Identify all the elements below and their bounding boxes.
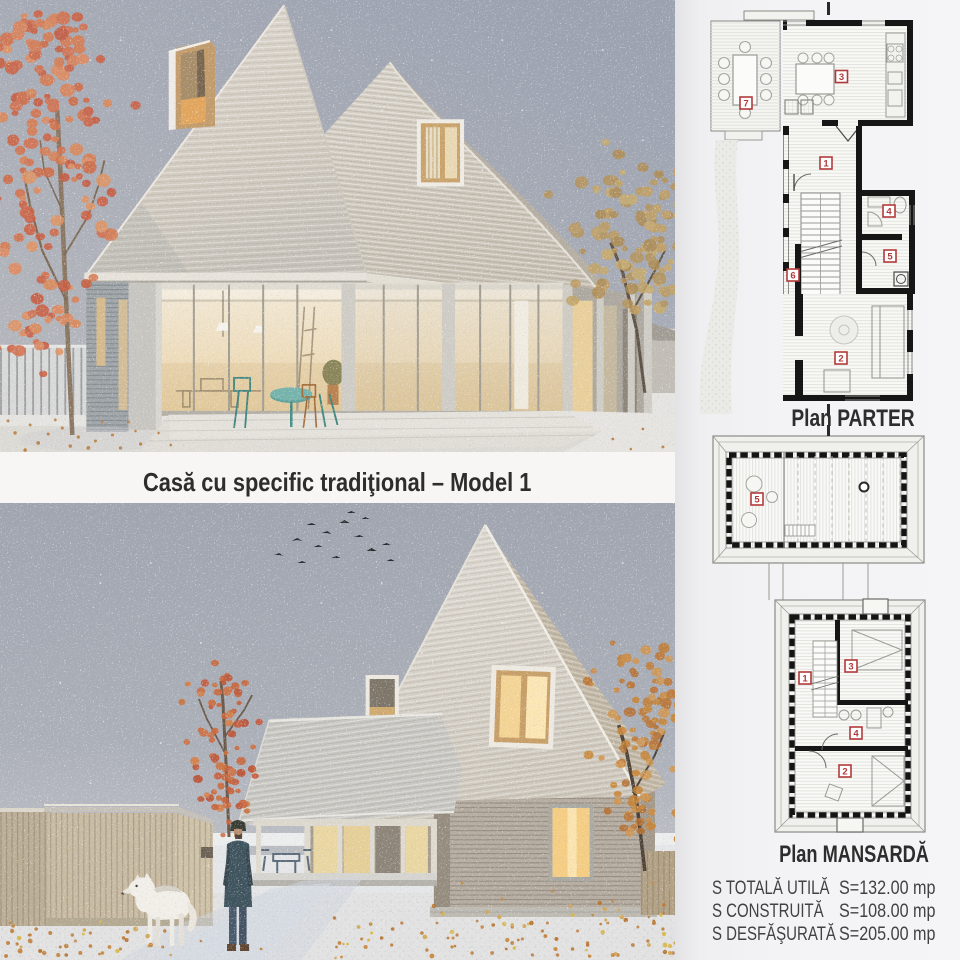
svg-text:S CONSTRUITĂ: S CONSTRUITĂ: [712, 900, 824, 921]
svg-text:S DESFĂŞURATĂ: S DESFĂŞURATĂ: [712, 923, 836, 944]
svg-text:S=108.00 mp: S=108.00 mp: [839, 900, 936, 922]
svg-text:2: 2: [842, 767, 847, 778]
svg-text:3: 3: [839, 72, 844, 83]
svg-text:7: 7: [743, 99, 748, 110]
svg-text:4: 4: [853, 729, 859, 740]
svg-text:1: 1: [823, 159, 829, 170]
svg-text:4: 4: [886, 207, 892, 218]
svg-text:6: 6: [790, 271, 795, 282]
svg-text:5: 5: [754, 495, 760, 506]
svg-text:S=132.00 mp: S=132.00 mp: [839, 877, 936, 899]
svg-text:S TOTALĂ UTILĂ: S TOTALĂ UTILĂ: [712, 877, 830, 898]
svg-text:5: 5: [887, 252, 893, 263]
svg-text:Plan PARTER: Plan PARTER: [791, 404, 915, 432]
svg-text:Plan MANSARDĂ: Plan MANSARDĂ: [779, 839, 929, 867]
svg-text:1: 1: [802, 674, 808, 685]
svg-text:2: 2: [838, 354, 843, 365]
svg-text:3: 3: [848, 662, 853, 673]
svg-text:S=205.00 mp: S=205.00 mp: [839, 923, 936, 945]
